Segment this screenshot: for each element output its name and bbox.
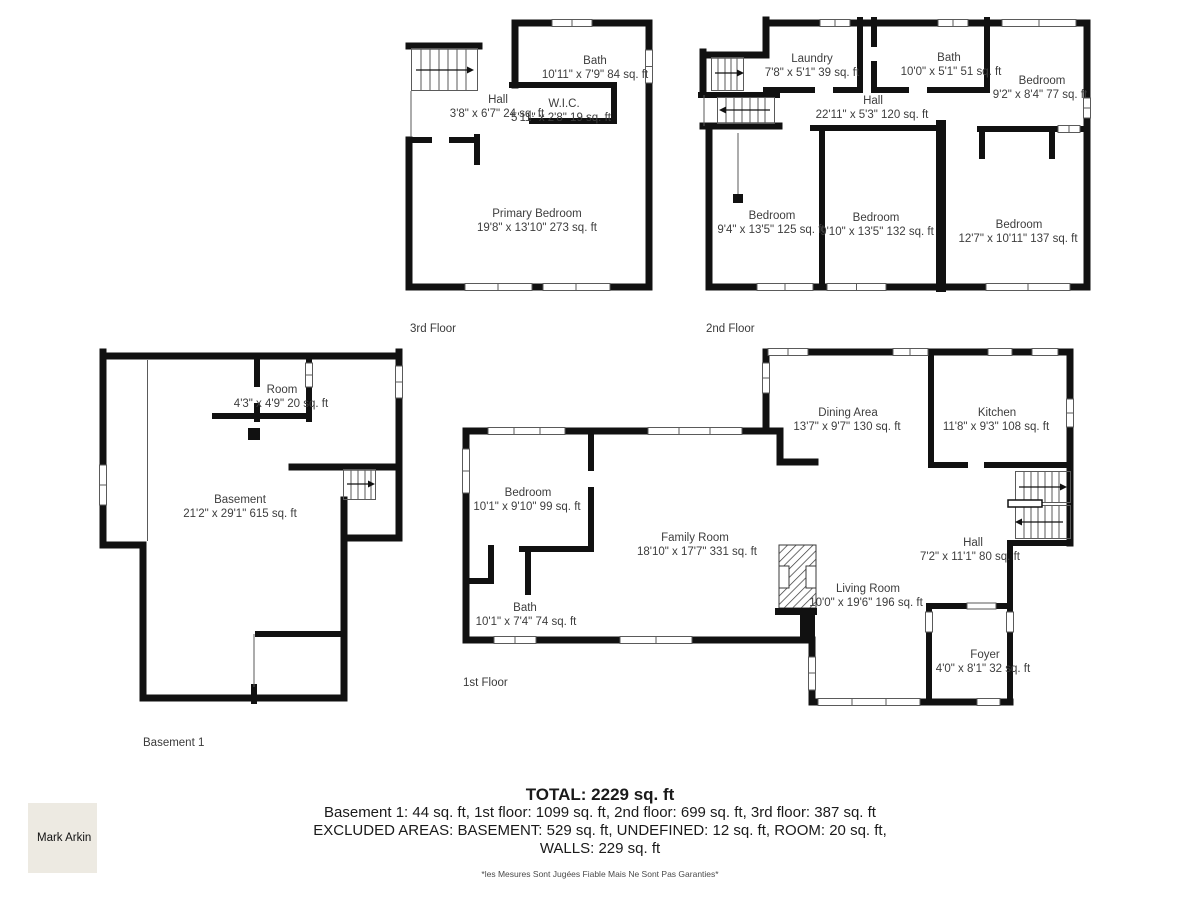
floor-2-plan: Laundry 7'8" x 5'1" 39 sq. ft Bath 10'0"… [701, 20, 1091, 336]
room-kitchen-dims: 11'8" x 9'3" 108 sq. ft [943, 421, 1050, 433]
basement-plan: Room 4'3" x 4'9" 20 sq. ft Basement 21'2… [100, 352, 403, 749]
room-living-name: Living Room [836, 583, 900, 595]
room-laundry-name: Laundry [791, 53, 833, 65]
room-bedroom3-dims: 12'7" x 10'11" 137 sq. ft [958, 233, 1078, 245]
walls [701, 20, 1087, 287]
room-bath-2f-dims: 10'0" x 5'1" 51 sq. ft [901, 66, 1003, 78]
floor-label-1st: 1st Floor [463, 677, 508, 689]
room-hall-3f-name: Hall [488, 94, 508, 106]
excluded-areas: EXCLUDED AREAS: BASEMENT: 529 sq. ft, UN… [0, 822, 1200, 840]
floor-areas: Basement 1: 44 sq. ft, 1st floor: 1099 s… [0, 804, 1200, 822]
room-foyer-dims: 4'0" x 8'1" 32 sq. ft [936, 663, 1031, 675]
room-wic-dims: 5'11" x 2'8" 19 sq. ft [511, 112, 612, 124]
room-bedroom-tr-name: Bedroom [1019, 75, 1066, 87]
room-basement-dims: 21'2" x 29'1" 615 sq. ft [183, 508, 297, 520]
room-bedroom1-dims: 9'4" x 13'5" 125 sq. ft [717, 224, 825, 236]
room-hall-1f-dims: 7'2" x 11'1" 80 sq. ft [920, 551, 1021, 563]
room-bath-2f-name: Bath [937, 52, 961, 64]
watermark-text: Mark Arkin [37, 832, 91, 844]
floor-3-plan: Bath 10'11" x 7'9" 84 sq. ft Hall 3'8" x… [409, 20, 653, 336]
floor-label-2nd: 2nd Floor [706, 323, 755, 335]
room-basement-room-dims: 4'3" x 4'9" 20 sq. ft [234, 398, 329, 410]
room-family-dims: 18'10" x 17'7" 331 sq. ft [637, 546, 758, 558]
room-bath-3f-dims: 10'11" x 7'9" 84 sq. ft [542, 69, 649, 81]
room-kitchen-name: Kitchen [978, 407, 1016, 419]
stairs [412, 49, 478, 91]
fireplace [775, 545, 817, 641]
floorplan-drawing: Bath 10'11" x 7'9" 84 sq. ft Hall 3'8" x… [0, 0, 1200, 900]
room-basement-name: Basement [214, 494, 267, 506]
stairs [344, 470, 376, 500]
room-labels: Room 4'3" x 4'9" 20 sq. ft Basement 21'2… [143, 384, 329, 749]
room-bath-3f-name: Bath [583, 55, 607, 67]
room-dining-dims: 13'7" x 9'7" 130 sq. ft [793, 421, 901, 433]
room-wic-name: W.I.C. [548, 98, 579, 110]
area-summary: TOTAL: 2229 sq. ft Basement 1: 44 sq. ft… [0, 785, 1200, 858]
room-bedroom2-dims: 9'10" x 13'5" 132 sq. ft [820, 226, 934, 238]
windows [465, 20, 653, 291]
room-hall-1f-name: Hall [963, 537, 983, 549]
floor-label-basement: Basement 1 [143, 737, 204, 749]
room-hall-2f-dims: 22'11" x 5'3" 120 sq. ft [816, 109, 930, 121]
total-area: TOTAL: 2229 sq. ft [0, 785, 1200, 804]
floor-1-plan: Bedroom 10'1" x 9'10" 99 sq. ft Bath 10'… [463, 349, 1074, 706]
room-bedroom-1f-dims: 10'1" x 9'10" 99 sq. ft [473, 501, 581, 513]
room-primary-name: Primary Bedroom [492, 208, 581, 220]
room-hall-2f-name: Hall [863, 95, 883, 107]
room-bath-1f-dims: 10'1" x 7'4" 74 sq. ft [476, 616, 578, 628]
walls-area: WALLS: 229 sq. ft [0, 840, 1200, 858]
room-dining-name: Dining Area [818, 407, 878, 419]
room-basement-room-name: Room [267, 384, 298, 396]
watermark-badge: Mark Arkin [28, 803, 97, 873]
measurement-disclaimer: *les Mesures Sont Jugées Fiable Mais Ne … [0, 869, 1200, 879]
room-foyer-name: Foyer [970, 649, 1000, 661]
stair-handrail [1008, 500, 1042, 507]
walls [409, 23, 649, 287]
floor-label-3rd: 3rd Floor [410, 323, 456, 335]
room-bedroom-1f-name: Bedroom [505, 487, 552, 499]
room-bedroom-tr-dims: 9'2" x 8'4" 77 sq. ft [993, 89, 1088, 101]
room-living-dims: 10'0" x 19'6" 196 sq. ft [809, 597, 923, 609]
room-bedroom3-name: Bedroom [996, 219, 1043, 231]
room-bedroom1-name: Bedroom [749, 210, 796, 222]
room-bedroom2-name: Bedroom [853, 212, 900, 224]
room-family-name: Family Room [661, 532, 729, 544]
room-primary-dims: 19'8" x 13'10" 273 sq. ft [477, 222, 598, 234]
stairs [1008, 472, 1071, 539]
room-bath-1f-name: Bath [513, 602, 537, 614]
room-laundry-dims: 7'8" x 5'1" 39 sq. ft [765, 67, 860, 79]
floorplan-page: Bath 10'11" x 7'9" 84 sq. ft Hall 3'8" x… [0, 0, 1200, 900]
